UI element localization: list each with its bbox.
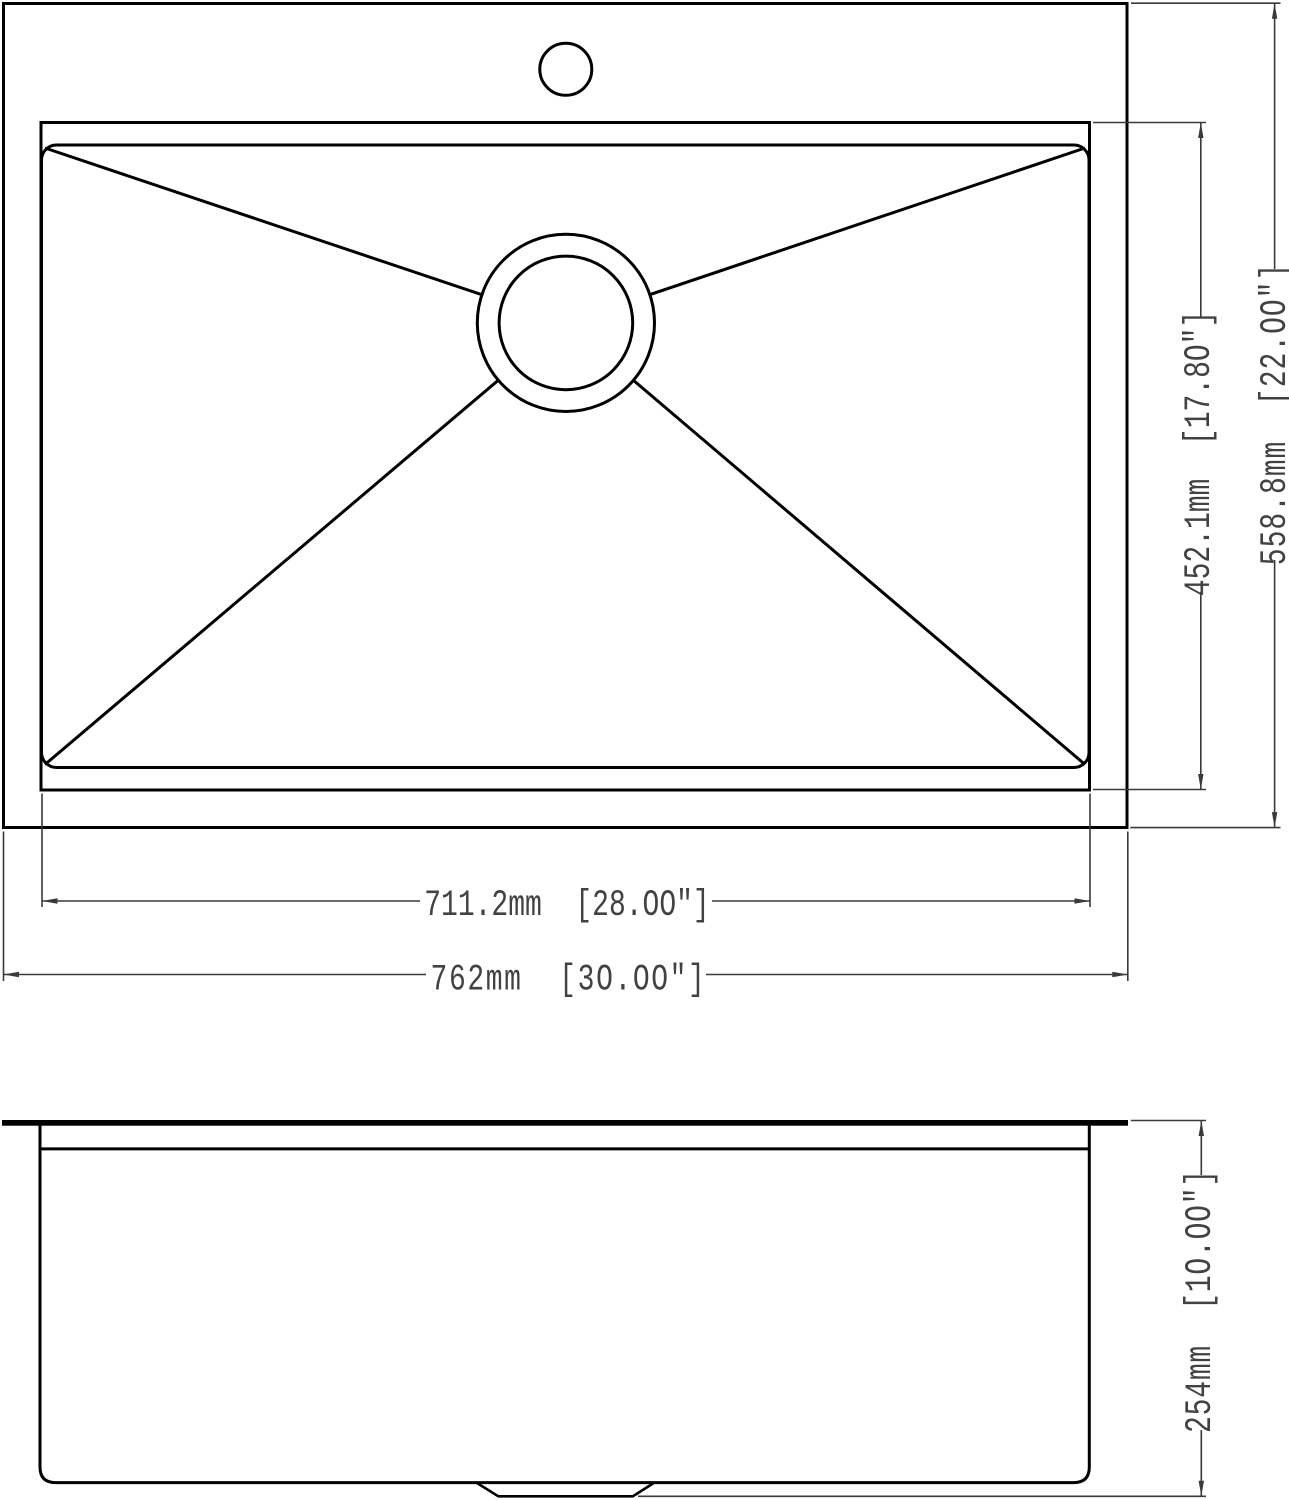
svg-text:711.2mm [28.OO"]: 711.2mm [28.OO"] (424, 885, 709, 927)
svg-text:452.1mm [17.8O"]: 452.1mm [17.8O"] (1179, 311, 1221, 596)
svg-text:558.8mm [22.OO"]: 558.8mm [22.OO"] (1255, 263, 1289, 565)
svg-text:762mm [3O.OO"]: 762mm [3O.OO"] (431, 959, 707, 1001)
svg-text:254mm [1O.OO"]: 254mm [1O.OO"] (1180, 1169, 1222, 1433)
